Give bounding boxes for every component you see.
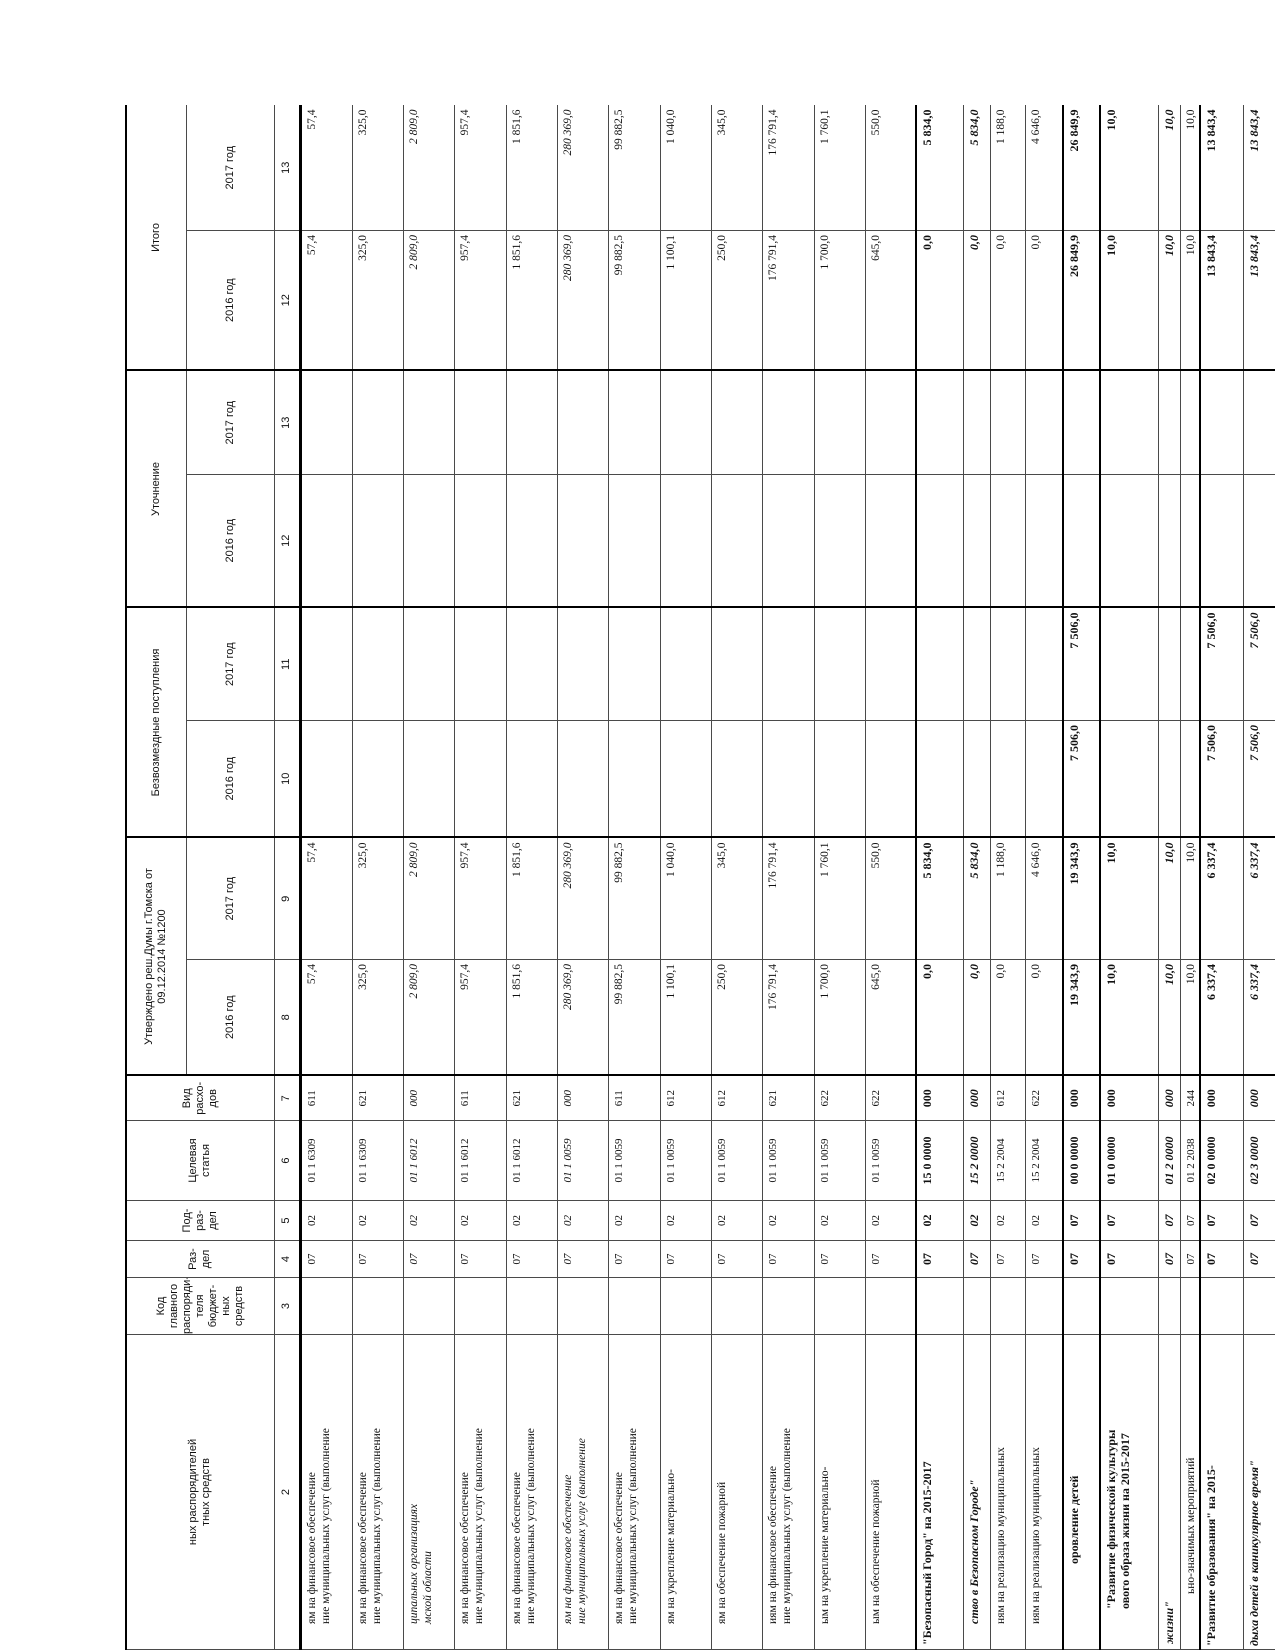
cell-razdel: 07 xyxy=(711,1241,762,1278)
cell-vid: 611 xyxy=(300,1076,352,1121)
cell-kod xyxy=(300,1278,352,1335)
cell-vid: 000 xyxy=(916,1076,963,1121)
cell-vid: 621 xyxy=(762,1076,814,1121)
cell-razdel: 07 xyxy=(403,1241,454,1278)
cell-total-2016: 325,0 xyxy=(352,230,403,370)
column-number: 9 xyxy=(274,838,300,960)
cell-total-2016: 57,4 xyxy=(300,230,352,370)
header-group-approved: Утверждено реш.Думы г.Томска от 09.12.20… xyxy=(126,838,186,1076)
cell-grants-2016 xyxy=(352,721,403,838)
table-row: ям на финансовое обеспечение ние муницип… xyxy=(300,105,352,1650)
cell-target: 15 2 0000 xyxy=(963,1121,990,1201)
cell-grants-2017 xyxy=(506,608,557,721)
cell-approved-2016: 645,0 xyxy=(865,960,916,1076)
cell-kod xyxy=(1200,1278,1243,1335)
header-grants-2016: 2016 год xyxy=(186,721,274,838)
cell-kod xyxy=(762,1278,814,1335)
cell-name: оровление детей xyxy=(1063,1335,1100,1650)
cell-grants-2016 xyxy=(608,721,660,838)
cell-total-2016: 1 851,6 xyxy=(506,230,557,370)
column-number: 10 xyxy=(274,721,300,838)
cell-adjust-2016 xyxy=(1158,475,1180,608)
cell-target: 01 1 0059 xyxy=(608,1121,660,1201)
cell-approved-2016: 10,0 xyxy=(1158,960,1180,1076)
cell-adjust-2016 xyxy=(608,475,660,608)
cell-podrazdel: 02 xyxy=(454,1201,506,1241)
cell-grants-2017 xyxy=(403,608,454,721)
cell-target: 01 1 6012 xyxy=(454,1121,506,1201)
cell-adjust-2017 xyxy=(762,370,814,474)
table-row: ым на укрепление материально-070201 1 00… xyxy=(814,105,865,1650)
cell-approved-2017: 5 834,0 xyxy=(916,838,963,960)
cell-grants-2016 xyxy=(1025,721,1063,838)
cell-kod xyxy=(454,1278,506,1335)
cell-target: 01 1 6012 xyxy=(506,1121,557,1201)
cell-grants-2017 xyxy=(1180,608,1200,721)
table-row: ям на обеспечение пожарной070201 1 00596… xyxy=(711,105,762,1650)
cell-name: ьно-значимых мероприятий xyxy=(1180,1335,1200,1650)
cell-razdel: 07 xyxy=(1100,1241,1158,1278)
cell-total-2017: 957,4 xyxy=(454,105,506,230)
cell-approved-2016: 0,0 xyxy=(963,960,990,1076)
cell-target: 01 2 2038 xyxy=(1180,1121,1200,1201)
cell-adjust-2017 xyxy=(1200,370,1243,474)
cell-razdel: 07 xyxy=(814,1241,865,1278)
cell-grants-2017 xyxy=(557,608,608,721)
cell-adjust-2016 xyxy=(1100,475,1158,608)
cell-kod xyxy=(1180,1278,1200,1335)
cell-adjust-2017 xyxy=(990,370,1025,474)
table-row: оровление детей070700 0 000000019 343,91… xyxy=(1063,105,1100,1650)
cell-grants-2016 xyxy=(916,721,963,838)
header-name-column: ных распорядителей тных средств xyxy=(126,1335,274,1650)
cell-grants-2017 xyxy=(963,608,990,721)
cell-grants-2016: 7 506,0 xyxy=(1063,721,1100,838)
cell-razdel: 07 xyxy=(963,1241,990,1278)
cell-approved-2017: 1 040,0 xyxy=(660,838,711,960)
cell-podrazdel: 02 xyxy=(403,1201,454,1241)
cell-total-2016: 1 100,1 xyxy=(660,230,711,370)
cell-podrazdel: 02 xyxy=(1025,1201,1063,1241)
cell-total-2017: 1 760,1 xyxy=(814,105,865,230)
cell-name: жизни" xyxy=(1158,1335,1180,1650)
cell-total-2016: 957,4 xyxy=(454,230,506,370)
cell-kod xyxy=(990,1278,1025,1335)
cell-grants-2016 xyxy=(660,721,711,838)
cell-vid: 621 xyxy=(506,1076,557,1121)
cell-approved-2016: 325,0 xyxy=(352,960,403,1076)
header-kod-column: Код главного распоряди- теля бюджет- ных… xyxy=(126,1278,274,1335)
cell-kod xyxy=(963,1278,990,1335)
cell-approved-2016: 957,4 xyxy=(454,960,506,1076)
cell-grants-2017 xyxy=(916,608,963,721)
cell-podrazdel: 02 xyxy=(557,1201,608,1241)
cell-podrazdel: 02 xyxy=(990,1201,1025,1241)
cell-total-2017: 4 646,0 xyxy=(1025,105,1063,230)
cell-adjust-2016 xyxy=(762,475,814,608)
cell-name: "Развитие образования" на 2015- xyxy=(1200,1335,1243,1650)
cell-podrazdel: 02 xyxy=(506,1201,557,1241)
cell-approved-2016: 10,0 xyxy=(1100,960,1158,1076)
cell-total-2016: 645,0 xyxy=(865,230,916,370)
cell-grants-2017 xyxy=(454,608,506,721)
cell-total-2017: 57,4 xyxy=(300,105,352,230)
cell-name: ство в Безопасном Городе" xyxy=(963,1335,990,1650)
cell-total-2016: 250,0 xyxy=(711,230,762,370)
cell-total-2016: 176 791,4 xyxy=(762,230,814,370)
cell-grants-2016 xyxy=(454,721,506,838)
cell-podrazdel: 02 xyxy=(814,1201,865,1241)
cell-total-2016: 10,0 xyxy=(1158,230,1180,370)
cell-adjust-2016 xyxy=(1063,475,1100,608)
table-row: иям на реализацию муниципальных070215 2 … xyxy=(1025,105,1063,1650)
table-body: ям на финансовое обеспечение ние муницип… xyxy=(300,105,1275,1650)
cell-vid: 622 xyxy=(814,1076,865,1121)
column-number: 4 xyxy=(274,1241,300,1278)
cell-approved-2017: 1 851,6 xyxy=(506,838,557,960)
cell-grants-2017 xyxy=(1100,608,1158,721)
table-row: дыха детей в каникулярное время"070702 3… xyxy=(1243,105,1275,1650)
cell-grants-2016 xyxy=(1100,721,1158,838)
cell-adjust-2016 xyxy=(814,475,865,608)
cell-podrazdel: 02 xyxy=(865,1201,916,1241)
cell-adjust-2016 xyxy=(916,475,963,608)
column-number: 12 xyxy=(274,230,300,370)
cell-total-2016: 0,0 xyxy=(963,230,990,370)
cell-grants-2016 xyxy=(1158,721,1180,838)
column-number: 6 xyxy=(274,1121,300,1201)
cell-podrazdel: 07 xyxy=(1200,1201,1243,1241)
cell-kod xyxy=(711,1278,762,1335)
cell-grants-2016: 7 506,0 xyxy=(1243,721,1275,838)
cell-name: ям на финансовое обеспечение ние муницип… xyxy=(454,1335,506,1650)
column-number: 2 xyxy=(274,1335,300,1650)
column-number: 3 xyxy=(274,1278,300,1335)
table-row: жизни"070701 2 000000010,010,010,010,0 xyxy=(1158,105,1180,1650)
cell-adjust-2017 xyxy=(557,370,608,474)
cell-total-2016: 13 843,4 xyxy=(1243,230,1275,370)
cell-approved-2017: 10,0 xyxy=(1158,838,1180,960)
cell-approved-2017: 5 834,0 xyxy=(963,838,990,960)
cell-name: ям на финансовое обеспечение ние муницип… xyxy=(352,1335,403,1650)
cell-approved-2017: 550,0 xyxy=(865,838,916,960)
cell-approved-2016: 0,0 xyxy=(916,960,963,1076)
cell-target: 01 1 0059 xyxy=(557,1121,608,1201)
cell-podrazdel: 02 xyxy=(711,1201,762,1241)
cell-approved-2016: 0,0 xyxy=(990,960,1025,1076)
cell-adjust-2017 xyxy=(660,370,711,474)
cell-podrazdel: 07 xyxy=(1243,1201,1275,1241)
cell-vid: 244 xyxy=(1180,1076,1200,1121)
column-number: 12 xyxy=(274,475,300,608)
cell-grants-2016: 7 506,0 xyxy=(1200,721,1243,838)
cell-name: ям на финансовое обеспечение ние муницип… xyxy=(506,1335,557,1650)
cell-target: 01 1 0059 xyxy=(865,1121,916,1201)
cell-vid: 612 xyxy=(711,1076,762,1121)
cell-kod xyxy=(814,1278,865,1335)
cell-approved-2017: 2 809,0 xyxy=(403,838,454,960)
table-row: ям на финансовое обеспечение ние муницип… xyxy=(557,105,608,1650)
cell-adjust-2016 xyxy=(990,475,1025,608)
cell-name: ням на реализацию муниципальных xyxy=(990,1335,1025,1650)
table-row: ым на обеспечение пожарной070201 1 00596… xyxy=(865,105,916,1650)
scanned-page: { "header": { "col_name_fragment": "ных … xyxy=(0,0,1275,1650)
cell-adjust-2017 xyxy=(711,370,762,474)
cell-total-2017: 1 040,0 xyxy=(660,105,711,230)
cell-adjust-2016 xyxy=(865,475,916,608)
cell-approved-2016: 99 882,5 xyxy=(608,960,660,1076)
cell-total-2017: 1 851,6 xyxy=(506,105,557,230)
cell-razdel: 07 xyxy=(762,1241,814,1278)
cell-kod xyxy=(403,1278,454,1335)
cell-adjust-2016 xyxy=(1200,475,1243,608)
cell-grants-2017: 7 506,0 xyxy=(1063,608,1100,721)
cell-name: иям на финансовое обеспечение ние муници… xyxy=(762,1335,814,1650)
cell-grants-2016 xyxy=(963,721,990,838)
cell-kod xyxy=(865,1278,916,1335)
cell-adjust-2016 xyxy=(963,475,990,608)
cell-razdel: 07 xyxy=(1158,1241,1180,1278)
cell-adjust-2017 xyxy=(865,370,916,474)
header-total-2016: 2016 год xyxy=(186,230,274,370)
table-row: иям на финансовое обеспечение ние муници… xyxy=(762,105,814,1650)
cell-approved-2017: 6 337,4 xyxy=(1243,838,1275,960)
table-row: "Развитие физической культуры ового обра… xyxy=(1100,105,1158,1650)
cell-razdel: 07 xyxy=(660,1241,711,1278)
table-row: "Развитие образования" на 2015-070702 0 … xyxy=(1200,105,1243,1650)
cell-vid: 000 xyxy=(1063,1076,1100,1121)
cell-total-2017: 10,0 xyxy=(1100,105,1158,230)
cell-approved-2017: 10,0 xyxy=(1180,838,1200,960)
cell-approved-2016: 2 809,0 xyxy=(403,960,454,1076)
cell-grants-2016 xyxy=(506,721,557,838)
cell-grants-2017 xyxy=(814,608,865,721)
cell-podrazdel: 02 xyxy=(963,1201,990,1241)
cell-adjust-2017 xyxy=(352,370,403,474)
cell-grants-2016 xyxy=(990,721,1025,838)
cell-razdel: 07 xyxy=(865,1241,916,1278)
column-number: 7 xyxy=(274,1076,300,1121)
cell-approved-2017: 4 646,0 xyxy=(1025,838,1063,960)
cell-adjust-2016 xyxy=(557,475,608,608)
cell-name: "Развитие физической культуры ового обра… xyxy=(1100,1335,1158,1650)
cell-name: ям на обеспечение пожарной xyxy=(711,1335,762,1650)
cell-vid: 621 xyxy=(352,1076,403,1121)
cell-vid: 622 xyxy=(1025,1076,1063,1121)
header-razdel-column: Раз- дел xyxy=(126,1241,274,1278)
cell-razdel: 07 xyxy=(1180,1241,1200,1278)
cell-adjust-2017 xyxy=(1243,370,1275,474)
cell-grants-2017 xyxy=(990,608,1025,721)
cell-vid: 612 xyxy=(660,1076,711,1121)
cell-name: ям на финансовое обеспечение ние муницип… xyxy=(608,1335,660,1650)
cell-razdel: 07 xyxy=(990,1241,1025,1278)
cell-target: 01 1 6012 xyxy=(403,1121,454,1201)
table-row: ям на укрепление материально-070201 1 00… xyxy=(660,105,711,1650)
cell-podrazdel: 02 xyxy=(608,1201,660,1241)
cell-vid: 000 xyxy=(1100,1076,1158,1121)
cell-grants-2017 xyxy=(352,608,403,721)
cell-razdel: 07 xyxy=(1243,1241,1275,1278)
cell-kod xyxy=(916,1278,963,1335)
cell-podrazdel: 02 xyxy=(916,1201,963,1241)
header-adjust-2016: 2016 год xyxy=(186,475,274,608)
cell-approved-2017: 345,0 xyxy=(711,838,762,960)
cell-grants-2017 xyxy=(1158,608,1180,721)
cell-target: 01 2 0000 xyxy=(1158,1121,1180,1201)
cell-target: 02 0 0000 xyxy=(1200,1121,1243,1201)
cell-adjust-2016 xyxy=(711,475,762,608)
cell-podrazdel: 07 xyxy=(1063,1201,1100,1241)
cell-total-2017: 5 834,0 xyxy=(916,105,963,230)
header-group-row: ных распорядителей тных средств Код глав… xyxy=(126,105,186,1650)
header-target-column: Целевая статья xyxy=(126,1121,274,1201)
cell-approved-2017: 1 760,1 xyxy=(814,838,865,960)
cell-kod xyxy=(506,1278,557,1335)
cell-approved-2016: 0,0 xyxy=(1025,960,1063,1076)
cell-kod xyxy=(608,1278,660,1335)
cell-adjust-2017 xyxy=(506,370,557,474)
cell-approved-2017: 99 882,5 xyxy=(608,838,660,960)
cell-approved-2016: 6 337,4 xyxy=(1200,960,1243,1076)
cell-grants-2017 xyxy=(1025,608,1063,721)
cell-total-2016: 13 843,4 xyxy=(1200,230,1243,370)
header-vid-column: Вид расхо- дов xyxy=(126,1076,274,1121)
cell-razdel: 07 xyxy=(916,1241,963,1278)
cell-total-2016: 10,0 xyxy=(1100,230,1158,370)
table-row: ьно-значимых мероприятий070701 2 2038244… xyxy=(1180,105,1200,1650)
cell-target: 15 2 2004 xyxy=(1025,1121,1063,1201)
cell-approved-2016: 6 337,4 xyxy=(1243,960,1275,1076)
cell-podrazdel: 07 xyxy=(1158,1201,1180,1241)
cell-target: 01 0 0000 xyxy=(1100,1121,1158,1201)
cell-name: ым на обеспечение пожарной xyxy=(865,1335,916,1650)
cell-name: "Безопасный Город" на 2015-2017 xyxy=(916,1335,963,1650)
cell-grants-2016 xyxy=(762,721,814,838)
cell-adjust-2016 xyxy=(1025,475,1063,608)
table-row: ям на финансовое обеспечение ние муницип… xyxy=(506,105,557,1650)
cell-adjust-2017 xyxy=(403,370,454,474)
cell-adjust-2016 xyxy=(1180,475,1200,608)
cell-razdel: 07 xyxy=(454,1241,506,1278)
cell-target: 01 1 0059 xyxy=(762,1121,814,1201)
cell-adjust-2016 xyxy=(660,475,711,608)
cell-podrazdel: 07 xyxy=(1100,1201,1158,1241)
cell-adjust-2016 xyxy=(1243,475,1275,608)
cell-vid: 000 xyxy=(403,1076,454,1121)
table-row: ям на финансовое обеспечение ние муницип… xyxy=(352,105,403,1650)
cell-adjust-2016 xyxy=(352,475,403,608)
cell-approved-2017: 280 369,0 xyxy=(557,838,608,960)
cell-approved-2017: 176 791,4 xyxy=(762,838,814,960)
header-approved-2016: 2016 год xyxy=(186,960,274,1076)
cell-target: 15 0 0000 xyxy=(916,1121,963,1201)
cell-name: иям на реализацию муниципальных xyxy=(1025,1335,1063,1650)
cell-total-2016: 10,0 xyxy=(1180,230,1200,370)
header-podrazdel-column: Под- раз- дел xyxy=(126,1201,274,1241)
cell-vid: 622 xyxy=(865,1076,916,1121)
cell-grants-2017: 7 506,0 xyxy=(1200,608,1243,721)
cell-approved-2017: 19 343,9 xyxy=(1063,838,1100,960)
cell-adjust-2017 xyxy=(963,370,990,474)
cell-razdel: 07 xyxy=(352,1241,403,1278)
cell-approved-2016: 1 700,0 xyxy=(814,960,865,1076)
cell-adjust-2017 xyxy=(1158,370,1180,474)
table-row: ням на реализацию муниципальных070215 2 … xyxy=(990,105,1025,1650)
table-row: ципальных организациях мской области0702… xyxy=(403,105,454,1650)
cell-grants-2017 xyxy=(608,608,660,721)
cell-kod xyxy=(557,1278,608,1335)
rotated-table-container: ных распорядителей тных средств Код глав… xyxy=(125,105,1275,1650)
cell-grants-2016 xyxy=(814,721,865,838)
cell-total-2016: 0,0 xyxy=(916,230,963,370)
cell-target: 01 1 0059 xyxy=(814,1121,865,1201)
cell-podrazdel: 02 xyxy=(352,1201,403,1241)
cell-total-2016: 0,0 xyxy=(1025,230,1063,370)
cell-grants-2016 xyxy=(300,721,352,838)
column-number-row: 23456789101112131213 xyxy=(274,105,300,1650)
cell-adjust-2017 xyxy=(1100,370,1158,474)
budget-table: ных распорядителей тных средств Код глав… xyxy=(125,105,1275,1650)
table-row: "Безопасный Город" на 2015-2017070215 0 … xyxy=(916,105,963,1650)
cell-vid: 611 xyxy=(454,1076,506,1121)
cell-total-2016: 26 849,9 xyxy=(1063,230,1100,370)
cell-target: 00 0 0000 xyxy=(1063,1121,1100,1201)
cell-adjust-2016 xyxy=(403,475,454,608)
cell-total-2017: 550,0 xyxy=(865,105,916,230)
cell-grants-2016 xyxy=(1180,721,1200,838)
cell-name: дыха детей в каникулярное время" xyxy=(1243,1335,1275,1650)
cell-podrazdel: 07 xyxy=(1180,1201,1200,1241)
cell-approved-2016: 176 791,4 xyxy=(762,960,814,1076)
header-group-grants: Безвозмездные поступления xyxy=(126,608,186,838)
cell-total-2017: 5 834,0 xyxy=(963,105,990,230)
cell-adjust-2017 xyxy=(1063,370,1100,474)
cell-razdel: 07 xyxy=(1025,1241,1063,1278)
cell-vid: 000 xyxy=(1243,1076,1275,1121)
cell-grants-2016 xyxy=(711,721,762,838)
cell-total-2017: 280 369,0 xyxy=(557,105,608,230)
cell-approved-2016: 280 369,0 xyxy=(557,960,608,1076)
cell-kod xyxy=(1025,1278,1063,1335)
cell-target: 02 3 0000 xyxy=(1243,1121,1275,1201)
cell-grants-2017 xyxy=(711,608,762,721)
cell-total-2017: 13 843,4 xyxy=(1243,105,1275,230)
cell-grants-2017 xyxy=(865,608,916,721)
header-approved-2017: 2017 год xyxy=(186,838,274,960)
cell-approved-2017: 957,4 xyxy=(454,838,506,960)
cell-approved-2016: 1 851,6 xyxy=(506,960,557,1076)
column-number: 5 xyxy=(274,1201,300,1241)
column-number: 8 xyxy=(274,960,300,1076)
cell-total-2017: 13 843,4 xyxy=(1200,105,1243,230)
column-number: 13 xyxy=(274,370,300,474)
cell-approved-2016: 10,0 xyxy=(1180,960,1200,1076)
cell-adjust-2016 xyxy=(300,475,352,608)
cell-kod xyxy=(660,1278,711,1335)
cell-kod xyxy=(1063,1278,1100,1335)
column-number: 13 xyxy=(274,105,300,230)
cell-adjust-2017 xyxy=(916,370,963,474)
cell-name: ям на финансовое обеспечение ние муницип… xyxy=(557,1335,608,1650)
cell-target: 01 1 0059 xyxy=(711,1121,762,1201)
cell-adjust-2016 xyxy=(454,475,506,608)
cell-name: ям на финансовое обеспечение ние муницип… xyxy=(300,1335,352,1650)
cell-total-2016: 1 700,0 xyxy=(814,230,865,370)
cell-razdel: 07 xyxy=(608,1241,660,1278)
table-row: ям на финансовое обеспечение ние муницип… xyxy=(454,105,506,1650)
cell-kod xyxy=(1158,1278,1180,1335)
